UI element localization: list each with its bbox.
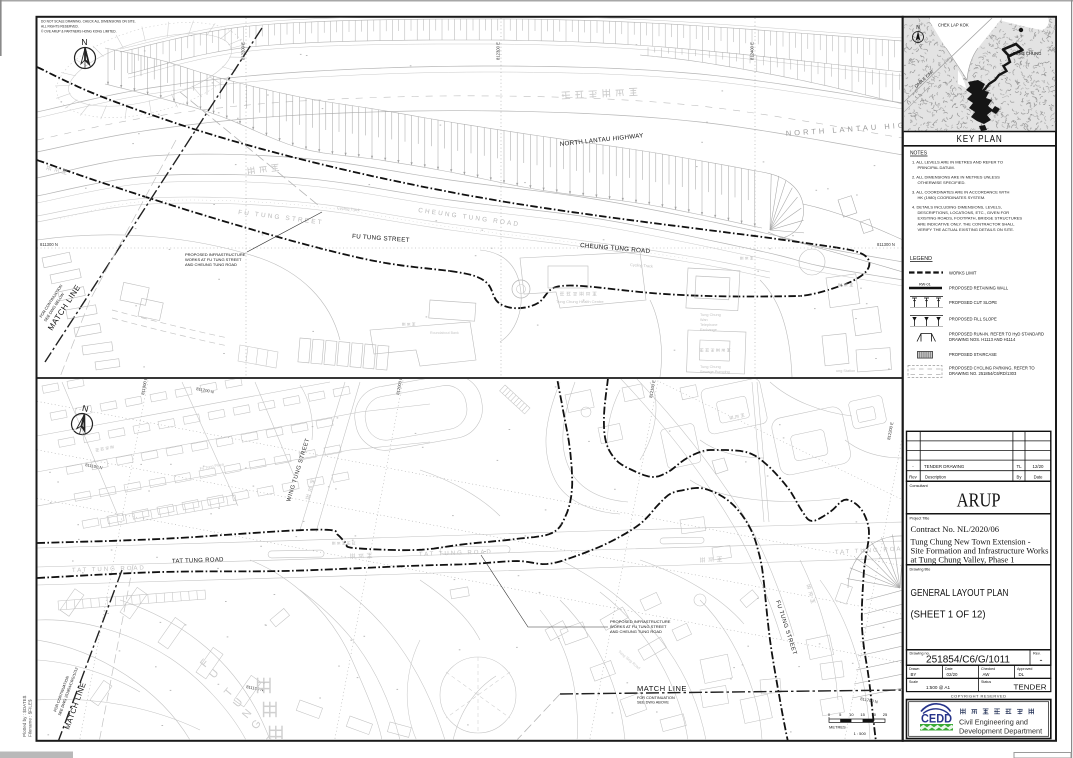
svg-text:12/20: 12/20 bbox=[1033, 464, 1045, 469]
svg-text:02/20: 02/20 bbox=[947, 672, 959, 677]
svg-text:TENDER: TENDER bbox=[1014, 684, 1047, 691]
svg-text:Status: Status bbox=[981, 680, 991, 684]
svg-text:AW: AW bbox=[983, 672, 991, 677]
svg-text:ARUP: ARUP bbox=[957, 491, 1001, 512]
svg-text:Checked: Checked bbox=[981, 667, 995, 671]
svg-text:PROPOSED STAIRCASE: PROPOSED STAIRCASE bbox=[949, 352, 997, 357]
svg-text:RW-01: RW-01 bbox=[919, 283, 931, 287]
svg-text:Description: Description bbox=[925, 475, 947, 480]
svg-text:N: N bbox=[916, 25, 920, 31]
svg-text:ung Station: ung Station bbox=[836, 369, 855, 373]
svg-text:1 : 500: 1 : 500 bbox=[854, 731, 867, 736]
svg-text:OTHERWISE SPECIFIED.: OTHERWISE SPECIFIED. bbox=[918, 180, 966, 185]
svg-text:LEGEND: LEGEND bbox=[910, 256, 932, 262]
svg-text:PROPOSED RUN-IN. REFER TO HyD: PROPOSED RUN-IN. REFER TO HyD STANDARD bbox=[949, 332, 1044, 337]
svg-text:METRES: METRES bbox=[829, 725, 846, 730]
svg-text:Drawing title: Drawing title bbox=[910, 568, 931, 572]
svg-text:812200 E: 812200 E bbox=[241, 42, 246, 60]
svg-text:SEE DWG ABOVE: SEE DWG ABOVE bbox=[637, 701, 669, 705]
svg-text:CHEK LAP KOK: CHEK LAP KOK bbox=[938, 23, 969, 28]
svg-text:Roundabout Bank: Roundabout Bank bbox=[430, 331, 459, 335]
svg-text:Sewage Pumping: Sewage Pumping bbox=[700, 370, 730, 374]
svg-text:PROPOSED CYCLING PARKING. REFE: PROPOSED CYCLING PARKING. REFER TO bbox=[949, 366, 1035, 371]
svg-text:PROPOSED FILL SLOPE: PROPOSED FILL SLOPE bbox=[949, 317, 997, 322]
svg-text:-: - bbox=[1040, 655, 1043, 665]
svg-text:NOTES: NOTES bbox=[910, 151, 927, 157]
svg-text:811300 N: 811300 N bbox=[40, 242, 58, 247]
svg-text:15: 15 bbox=[860, 712, 865, 717]
svg-text:1:500 @ A1: 1:500 @ A1 bbox=[926, 685, 951, 690]
svg-text:BY: BY bbox=[911, 672, 917, 677]
svg-text:Civil Engineering and: Civil Engineering and bbox=[959, 718, 1028, 727]
svg-text:CEDD: CEDD bbox=[921, 712, 952, 726]
svg-text:© OVE ARUP & PARTNERS HONG KO: © OVE ARUP & PARTNERS HONG KONG LIMITED. bbox=[41, 30, 117, 34]
svg-text:ALL RIGHTS RESERVED.: ALL RIGHTS RESERVED. bbox=[41, 25, 79, 29]
svg-text:Filename : $FILE$: Filename : $FILE$ bbox=[28, 699, 33, 737]
svg-text:PRINCIPAL DATUM.: PRINCIPAL DATUM. bbox=[918, 165, 955, 170]
svg-text:1. ALL LEVELS ARE IN METRES AN: 1. ALL LEVELS ARE IN METRES AND REFER TO bbox=[912, 160, 1003, 165]
svg-text:DRAWING NO. 251854/C6/RD/1303: DRAWING NO. 251854/C6/RD/1303 bbox=[949, 371, 1017, 376]
svg-text:Project Title: Project Title bbox=[910, 517, 930, 521]
svg-text:TENDER DRAWING: TENDER DRAWING bbox=[924, 464, 965, 469]
svg-text:Scale: Scale bbox=[909, 680, 918, 684]
svg-text:Tung Chung: Tung Chung bbox=[700, 313, 721, 317]
svg-text:Rev: Rev bbox=[909, 475, 917, 480]
svg-text:VERIFY THE ACTUAL EXISTING DET: VERIFY THE ACTUAL EXISTING DETAILS ON SI… bbox=[918, 227, 1015, 232]
svg-text:Exchange: Exchange bbox=[700, 328, 717, 332]
svg-text:AND CHEUNG TUNG ROAD: AND CHEUNG TUNG ROAD bbox=[610, 629, 662, 634]
svg-text:251854/C6/G/1011: 251854/C6/G/1011 bbox=[926, 655, 1010, 666]
svg-text:Wan: Wan bbox=[700, 318, 708, 322]
svg-text:(SHEET 1 OF 12): (SHEET 1 OF 12) bbox=[911, 610, 986, 621]
svg-text:Consultant: Consultant bbox=[910, 484, 929, 488]
svg-text:25: 25 bbox=[883, 712, 888, 717]
svg-text:KEY PLAN: KEY PLAN bbox=[957, 133, 1003, 145]
svg-text:at Tung Chung Valley, Phase 1: at Tung Chung Valley, Phase 1 bbox=[911, 556, 1015, 565]
svg-text:WORKS LIMIT: WORKS LIMIT bbox=[949, 271, 977, 276]
svg-text:GENERAL LAYOUT PLAN: GENERAL LAYOUT PLAN bbox=[911, 588, 1009, 599]
svg-text:2. ALL DIMENSIONS ARE IN METRE: 2. ALL DIMENSIONS ARE IN METRES UNLESS bbox=[912, 175, 1000, 180]
svg-text:Tung Chung Health Centre: Tung Chung Health Centre bbox=[556, 299, 604, 304]
svg-text:Tung Chung New Town Extension: Tung Chung New Town Extension - bbox=[911, 538, 1031, 547]
svg-text:AND CHEUNG TUNG ROAD: AND CHEUNG TUNG ROAD bbox=[185, 262, 237, 267]
svg-text:FOR CONTINUATION: FOR CONTINUATION bbox=[637, 696, 675, 700]
svg-text:812400 E: 812400 E bbox=[750, 42, 755, 60]
svg-text:TUNG CHUNG: TUNG CHUNG bbox=[1013, 51, 1041, 56]
svg-text:Plotted by : $DATE$: Plotted by : $DATE$ bbox=[22, 695, 27, 737]
svg-text:811300 N: 811300 N bbox=[877, 242, 895, 247]
svg-text:Site Formation and Infrastruct: Site Formation and Infrastructure Works bbox=[911, 547, 1049, 556]
svg-text:COPYRIGHT RESERVED: COPYRIGHT RESERVED bbox=[951, 693, 1007, 698]
svg-text:DO NOT SCALE DRAWING. CHECK AL: DO NOT SCALE DRAWING. CHECK ALL DIMENSIO… bbox=[41, 20, 136, 24]
svg-text:Drawn: Drawn bbox=[909, 667, 919, 671]
svg-text:EXISTING ROADS, FOOTPATH, BRID: EXISTING ROADS, FOOTPATH, BRIDGE STRUCTU… bbox=[918, 216, 1023, 221]
svg-text:Approved: Approved bbox=[1017, 667, 1032, 671]
svg-text:Tung Chung: Tung Chung bbox=[700, 365, 721, 369]
svg-text:DESCRIPTIONS, LOCATIONS, ETC.,: DESCRIPTIONS, LOCATIONS, ETC., GIVEN FOR bbox=[918, 210, 1010, 215]
svg-text:HK (1980) COORDINATES SYSTEM.: HK (1980) COORDINATES SYSTEM. bbox=[918, 195, 986, 200]
svg-text:TL: TL bbox=[1016, 464, 1022, 469]
svg-text:DRAWING NOS. H1113 AND H1114: DRAWING NOS. H1113 AND H1114 bbox=[949, 337, 1016, 342]
svg-text:PROPOSED RETAINING WALL: PROPOSED RETAINING WALL bbox=[949, 286, 1009, 291]
svg-text:Date: Date bbox=[945, 667, 953, 671]
svg-text:MATCH LINE: MATCH LINE bbox=[637, 684, 687, 693]
svg-text:Telephone: Telephone bbox=[700, 323, 718, 327]
svg-text:ARE INDICATIVE ONLY. THE CONT: ARE INDICATIVE ONLY. THE CONTRACTOR SHAL… bbox=[918, 221, 1016, 226]
svg-text:DL: DL bbox=[1019, 672, 1025, 677]
svg-text:Development Department: Development Department bbox=[959, 727, 1042, 736]
svg-text:4. DETAILS INCLUDING DIMENSION: 4. DETAILS INCLUDING DIMENSIONS, LEVELS, bbox=[912, 205, 1002, 210]
svg-text:Contract No. NL/2020/06: Contract No. NL/2020/06 bbox=[911, 524, 1000, 534]
svg-text:10: 10 bbox=[849, 712, 854, 717]
svg-text:PROPOSED CUT SLOPE: PROPOSED CUT SLOPE bbox=[949, 300, 997, 305]
svg-text:20: 20 bbox=[872, 712, 877, 717]
svg-text:Date: Date bbox=[1034, 475, 1044, 480]
svg-text:N: N bbox=[81, 37, 87, 47]
svg-text:3. ALL COORDINATES ARE IN ACCO: 3. ALL COORDINATES ARE IN ACCORDANCE WIT… bbox=[912, 190, 1009, 195]
